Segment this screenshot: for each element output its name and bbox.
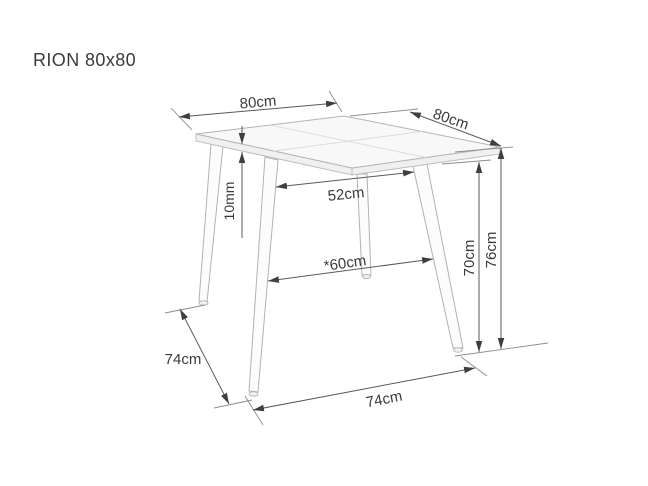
- table-foot-right: [454, 348, 463, 352]
- table-leg-front: [249, 157, 278, 392]
- dim-label-height-under-top: 70cm: [461, 240, 478, 277]
- table-drawing: 80cm 80cm 10mm 52cm *60cm 70cm 76cm: [0, 0, 648, 486]
- table-leg-left: [199, 144, 223, 302]
- table-foot-front: [249, 392, 258, 396]
- dim-feet-span-side: 74cm: [165, 309, 229, 404]
- dim-label-height-total: 76cm: [483, 232, 500, 269]
- dim-height-total: 76cm: [483, 148, 501, 349]
- dim-top-width: 80cm: [179, 92, 337, 117]
- table-leg-right: [413, 164, 463, 348]
- dim-label-top-depth: 80cm: [431, 105, 471, 133]
- dimension-diagram: RION 80x80: [0, 0, 648, 486]
- dim-leg-gap-wide: *60cm: [268, 252, 433, 281]
- dim-leg-gap-top: 52cm: [276, 172, 414, 205]
- table-foot-back: [363, 275, 371, 279]
- dim-label-feet-span-front: 74cm: [364, 388, 403, 412]
- table-foot-left: [199, 301, 208, 305]
- dim-feet-span-front: 74cm: [253, 368, 475, 411]
- dim-label-leg-gap-wide: *60cm: [323, 252, 367, 275]
- dim-height-under-top: 70cm: [461, 162, 479, 352]
- dim-label-top-thickness: 10mm: [221, 182, 237, 221]
- dim-label-top-width: 80cm: [239, 92, 277, 112]
- dim-label-feet-span-side: 74cm: [165, 351, 202, 368]
